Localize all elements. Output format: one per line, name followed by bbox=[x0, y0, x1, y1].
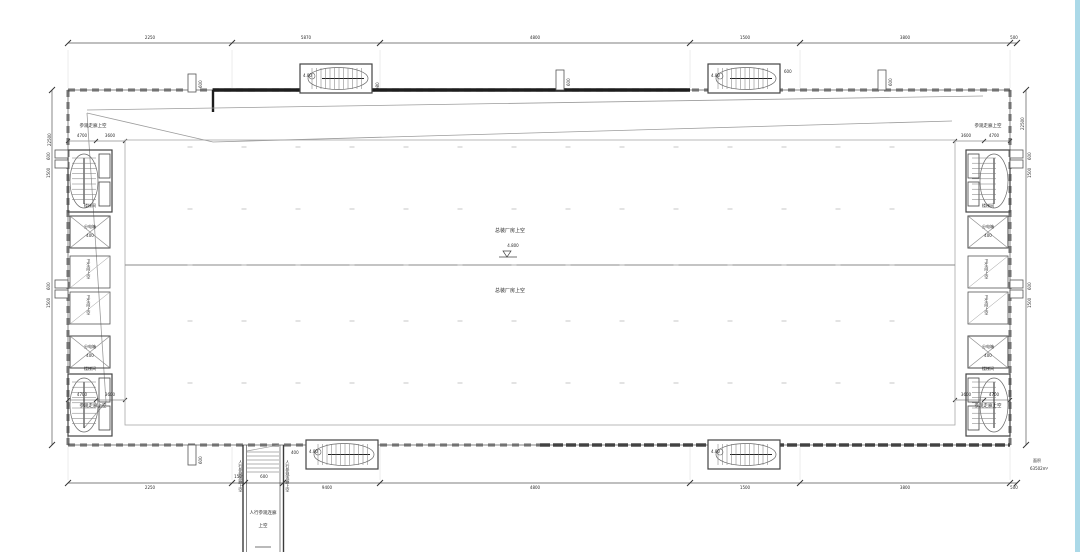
stub-dim: 600 bbox=[199, 456, 203, 464]
stub-dim: 600 bbox=[1028, 282, 1032, 290]
external-stair-bottom-left bbox=[306, 440, 378, 469]
corridor-label-line1: 人行参观连廊 bbox=[250, 512, 277, 517]
stub-dim: 1500 bbox=[1028, 298, 1032, 308]
outer-wall bbox=[68, 90, 1010, 445]
stair-label-top-left: 楼梯间 bbox=[84, 204, 96, 208]
elevation-marker bbox=[499, 251, 517, 257]
dim-label: 5870 bbox=[301, 36, 311, 40]
toilet-rooms bbox=[70, 256, 1008, 324]
dist-room-label: 分电箱 bbox=[982, 345, 994, 349]
dist-room-label: 分电箱 bbox=[982, 225, 994, 229]
stub-dim: 1500 bbox=[47, 298, 51, 308]
dim-label: 3600 bbox=[961, 134, 971, 138]
corridor-label-line2: 上空 bbox=[259, 525, 268, 530]
dim-label: 2250 bbox=[145, 36, 155, 40]
area-note-line2: 63502m² bbox=[1030, 467, 1048, 471]
corridor-dim: 400 bbox=[291, 451, 299, 455]
ext-stair-elevation: 4.80 bbox=[309, 450, 318, 454]
stair-tower-bottom-right bbox=[966, 336, 1010, 436]
dim-label: 3800 bbox=[900, 36, 910, 40]
dim-label: 2250 bbox=[145, 486, 155, 490]
stub-dim: 1500 bbox=[47, 168, 51, 178]
pedestrian-corridor bbox=[243, 445, 284, 552]
stub-dim: 1500 bbox=[1028, 168, 1032, 178]
ramp-lines bbox=[84, 96, 983, 428]
walkway-label-top-right: 参观走廊上空 bbox=[975, 125, 1002, 130]
dim-label: 500 bbox=[1010, 36, 1018, 40]
stair-label-bottom-left: 楼梯间 bbox=[84, 367, 96, 371]
corridor-side-label-right: 人行参观连廊上空 bbox=[285, 460, 289, 520]
dim-label: 600 bbox=[260, 475, 268, 479]
area-note-line1: 面积 bbox=[1033, 459, 1041, 463]
stair-label-bottom-right: 楼梯间 bbox=[982, 367, 994, 371]
dim-label: 1500 bbox=[740, 36, 750, 40]
dist-room-dim: 400 bbox=[984, 234, 992, 238]
ext-stair-dim: 600 bbox=[784, 70, 792, 74]
dim-label: 3600 bbox=[105, 134, 115, 138]
walkway-label-top-left: 参观走廊上空 bbox=[80, 125, 107, 130]
ext-stair-elevation: 4.80 bbox=[711, 450, 720, 454]
dim-label: 4800 bbox=[530, 36, 540, 40]
dist-room-label: 分电箱 bbox=[84, 345, 96, 349]
dim-label: 3800 bbox=[900, 486, 910, 490]
hall-upper-label: 总装厂房上空 bbox=[495, 229, 525, 235]
stub-dim: 600 bbox=[567, 78, 571, 86]
stub-dim: 600 bbox=[47, 152, 51, 160]
dist-room-dim: 400 bbox=[984, 354, 992, 358]
dist-room-dim: 400 bbox=[86, 234, 94, 238]
dim-label: 4700 bbox=[989, 393, 999, 397]
ext-stair-dim: 980 bbox=[376, 82, 380, 90]
dim-label: 4700 bbox=[77, 393, 87, 397]
walkway-label-bottom-right: 参观走廊上空 bbox=[975, 405, 1002, 410]
dim-label: 3600 bbox=[961, 393, 971, 397]
dimension-line-right bbox=[1023, 87, 1029, 448]
toilet-label: 卫生间上空 bbox=[984, 259, 988, 287]
screen-edge-strip bbox=[1075, 0, 1080, 552]
toilet-label: 卫生间上空 bbox=[86, 259, 90, 287]
dim-label: 1500 bbox=[740, 486, 750, 490]
dim-label: 4700 bbox=[989, 134, 999, 138]
wall-stubs bbox=[55, 70, 1023, 465]
dimension-line-bottom bbox=[65, 480, 1020, 486]
stub-dim: 600 bbox=[199, 80, 203, 88]
stub-dim: 600 bbox=[889, 78, 893, 86]
hall-lower-label: 总装厂房上空 bbox=[495, 289, 525, 295]
stub-dim: 600 bbox=[1028, 152, 1032, 160]
dist-room-dim: 400 bbox=[86, 354, 94, 358]
dim-label-vertical: 22500 bbox=[48, 133, 52, 146]
dim-label: 4800 bbox=[530, 486, 540, 490]
dim-label: 3600 bbox=[105, 393, 115, 397]
dimension-line-top bbox=[65, 40, 1020, 46]
dist-room-label: 分电箱 bbox=[84, 225, 96, 229]
external-stair-top-right bbox=[708, 64, 780, 93]
external-stair-top-left bbox=[300, 64, 372, 93]
ext-stair-elevation: 4.80 bbox=[711, 74, 720, 78]
inner-boundary bbox=[125, 140, 955, 425]
dim-label: 9400 bbox=[322, 486, 332, 490]
stair-label-top-right: 楼梯间 bbox=[982, 204, 994, 208]
ext-stair-elevation: 4.80 bbox=[303, 74, 312, 78]
corner-dimension-lines bbox=[66, 139, 1012, 402]
dim-label: 500 bbox=[1010, 486, 1018, 490]
toilet-label: 卫生间上空 bbox=[984, 295, 988, 323]
floor-plan-canvas: 2250 5870 4800 1500 3800 500 2250 150 60… bbox=[0, 0, 1080, 552]
hall-elevation-value: 4.800 bbox=[507, 244, 518, 248]
walkway-label-bottom-left: 参观走廊上空 bbox=[80, 405, 107, 410]
external-stair-bottom-right bbox=[708, 440, 780, 469]
dim-label-vertical: 22500 bbox=[1021, 117, 1025, 130]
toilet-label: 卫生间上空 bbox=[86, 295, 90, 323]
stair-treads bbox=[72, 68, 996, 465]
plan-drawing bbox=[0, 0, 1080, 552]
stub-dim: 600 bbox=[47, 282, 51, 290]
corridor-side-label-left: 人行参观连廊上空 bbox=[238, 460, 242, 520]
dim-label: 4700 bbox=[77, 134, 87, 138]
